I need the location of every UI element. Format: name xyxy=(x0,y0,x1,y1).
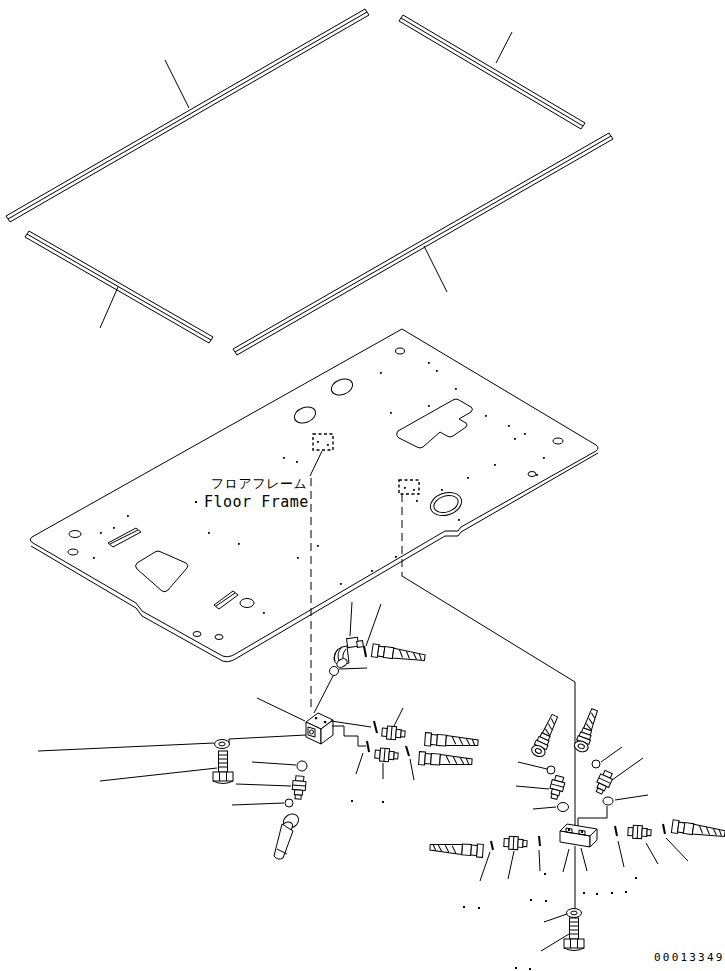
tick-mark xyxy=(367,741,369,752)
speck-dot xyxy=(515,967,517,969)
connector-fitting xyxy=(381,726,405,741)
leader-line xyxy=(236,784,291,786)
hose-fitting xyxy=(530,713,561,759)
connector-fitting xyxy=(593,769,615,795)
leader-line xyxy=(410,759,414,780)
weather-strip-2 xyxy=(399,15,585,129)
hole-dot xyxy=(238,543,240,545)
leader-line xyxy=(563,849,569,872)
hole-dot xyxy=(283,457,285,459)
elbow-fitting xyxy=(334,637,363,669)
hole-dot xyxy=(458,519,460,521)
hole-dot xyxy=(514,438,516,440)
floor-frame-label-ja: フロアフレーム xyxy=(211,476,307,491)
drawing-number: 00013349 xyxy=(654,951,725,964)
hole-dot xyxy=(436,370,438,372)
leader-line xyxy=(618,841,624,867)
leader-line xyxy=(366,604,381,646)
o-ring xyxy=(330,667,339,676)
hole-dot xyxy=(296,461,298,463)
o-ring xyxy=(592,760,600,768)
connector-fitting xyxy=(374,748,398,763)
hose-fitting xyxy=(573,707,601,753)
speck-dot xyxy=(478,907,480,909)
connector-fitting xyxy=(628,825,652,839)
parts-diagram-page: フロアフレーム Floor Frame xyxy=(0,0,725,971)
manifold-block-right xyxy=(560,824,597,847)
bolt xyxy=(564,918,584,951)
tick-mark xyxy=(406,746,409,756)
tick-mark xyxy=(491,841,493,850)
tick-mark xyxy=(374,721,377,733)
tick-mark xyxy=(539,836,540,846)
leader-line xyxy=(518,762,547,769)
hole-dot xyxy=(467,477,469,479)
speck-dot xyxy=(611,892,613,894)
o-ring xyxy=(297,761,307,771)
leader-line xyxy=(232,803,284,805)
leader-line xyxy=(100,768,217,781)
hole-dot xyxy=(543,457,545,459)
washer xyxy=(567,909,582,918)
connection-line xyxy=(578,806,607,826)
hose-end-fitting xyxy=(274,811,301,859)
o-ring xyxy=(547,766,555,774)
speck-dot xyxy=(545,900,547,902)
hole-dot xyxy=(317,545,319,547)
speck-dot xyxy=(382,801,384,803)
leader-line xyxy=(252,762,296,765)
washer xyxy=(215,740,230,749)
speck-dot xyxy=(625,891,627,893)
connector-fitting xyxy=(504,836,528,850)
leader-line xyxy=(424,246,447,292)
leader-line xyxy=(100,287,118,328)
hole-dot xyxy=(297,557,299,559)
connector-fitting xyxy=(548,775,567,801)
leader-line xyxy=(533,807,556,809)
hole-dot xyxy=(536,474,538,476)
leader-line xyxy=(516,786,549,789)
hole-dot xyxy=(485,415,487,417)
speck-dot xyxy=(596,893,598,895)
hose-fitting xyxy=(430,841,484,858)
speck-dot xyxy=(635,877,637,879)
tick-mark xyxy=(364,646,366,657)
leader-line xyxy=(339,668,367,669)
leader-line xyxy=(508,851,514,879)
hole-dot xyxy=(455,388,457,390)
hole-dot xyxy=(428,405,430,407)
o-ring xyxy=(558,803,569,812)
speck-dot xyxy=(529,968,531,970)
leader-line xyxy=(539,850,540,871)
floor-frame-plate xyxy=(30,329,598,662)
hole-dot xyxy=(524,433,526,435)
speck-dot xyxy=(544,873,546,875)
hole-dot xyxy=(93,557,95,559)
weather-strip-4 xyxy=(233,133,613,355)
leader-line xyxy=(581,848,587,871)
left-fitting-cluster xyxy=(213,637,478,859)
hole-dot xyxy=(428,362,430,364)
hole-dot xyxy=(113,527,115,529)
leader-line xyxy=(257,698,305,721)
o-ring xyxy=(285,799,293,807)
hole-dot xyxy=(441,489,443,491)
leader-line xyxy=(356,753,363,774)
floor-frame-parts-drawing: フロアフレーム Floor Frame xyxy=(0,0,725,971)
speck-dot xyxy=(583,892,585,894)
hose-fitting xyxy=(425,733,479,750)
hose-fitting xyxy=(671,820,725,840)
tick-mark xyxy=(663,824,665,834)
hole-dot xyxy=(371,570,373,572)
hole-dot xyxy=(494,464,496,466)
hole-dot xyxy=(327,444,329,446)
speck-dot xyxy=(530,899,532,901)
leader-line xyxy=(544,914,567,922)
tick-mark xyxy=(615,826,617,836)
leader-line xyxy=(646,843,658,864)
leader-line xyxy=(38,743,214,751)
leader-line xyxy=(612,758,643,780)
bolt xyxy=(213,751,233,784)
hole-dot xyxy=(263,612,265,614)
o-ring xyxy=(603,797,613,805)
hole-dot xyxy=(508,425,510,427)
connection-line xyxy=(332,726,366,746)
speck-dot xyxy=(463,906,465,908)
floor-frame-label-en: Floor Frame xyxy=(204,493,309,511)
connection-line xyxy=(229,735,306,743)
weather-strip-3 xyxy=(25,231,213,343)
manifold-block-left xyxy=(306,676,333,744)
hole-dot xyxy=(317,441,319,443)
hole-dot xyxy=(380,372,382,374)
leader-line xyxy=(615,795,648,800)
hole-dot xyxy=(208,532,210,534)
leader-line xyxy=(394,708,403,726)
leader-line xyxy=(601,747,622,762)
connector-fitting xyxy=(291,775,306,799)
hole-dot xyxy=(416,500,418,502)
weather-strip-1 xyxy=(6,9,369,222)
leader-line xyxy=(350,602,352,636)
hose-fitting xyxy=(371,644,425,664)
leader-line xyxy=(496,32,512,63)
label-speck xyxy=(195,501,197,503)
hose-fitting xyxy=(419,752,473,769)
leader-line xyxy=(165,60,189,108)
leader-line xyxy=(666,838,688,861)
hole-dot xyxy=(127,515,129,517)
hole-dot xyxy=(100,532,102,534)
hole-dot xyxy=(404,487,406,489)
speck-dot xyxy=(351,800,353,802)
hole-dot xyxy=(340,583,342,585)
hole-dot xyxy=(390,412,392,414)
hole-dot xyxy=(413,489,415,491)
scatter-dots xyxy=(351,800,637,970)
hole-dot xyxy=(395,556,397,558)
